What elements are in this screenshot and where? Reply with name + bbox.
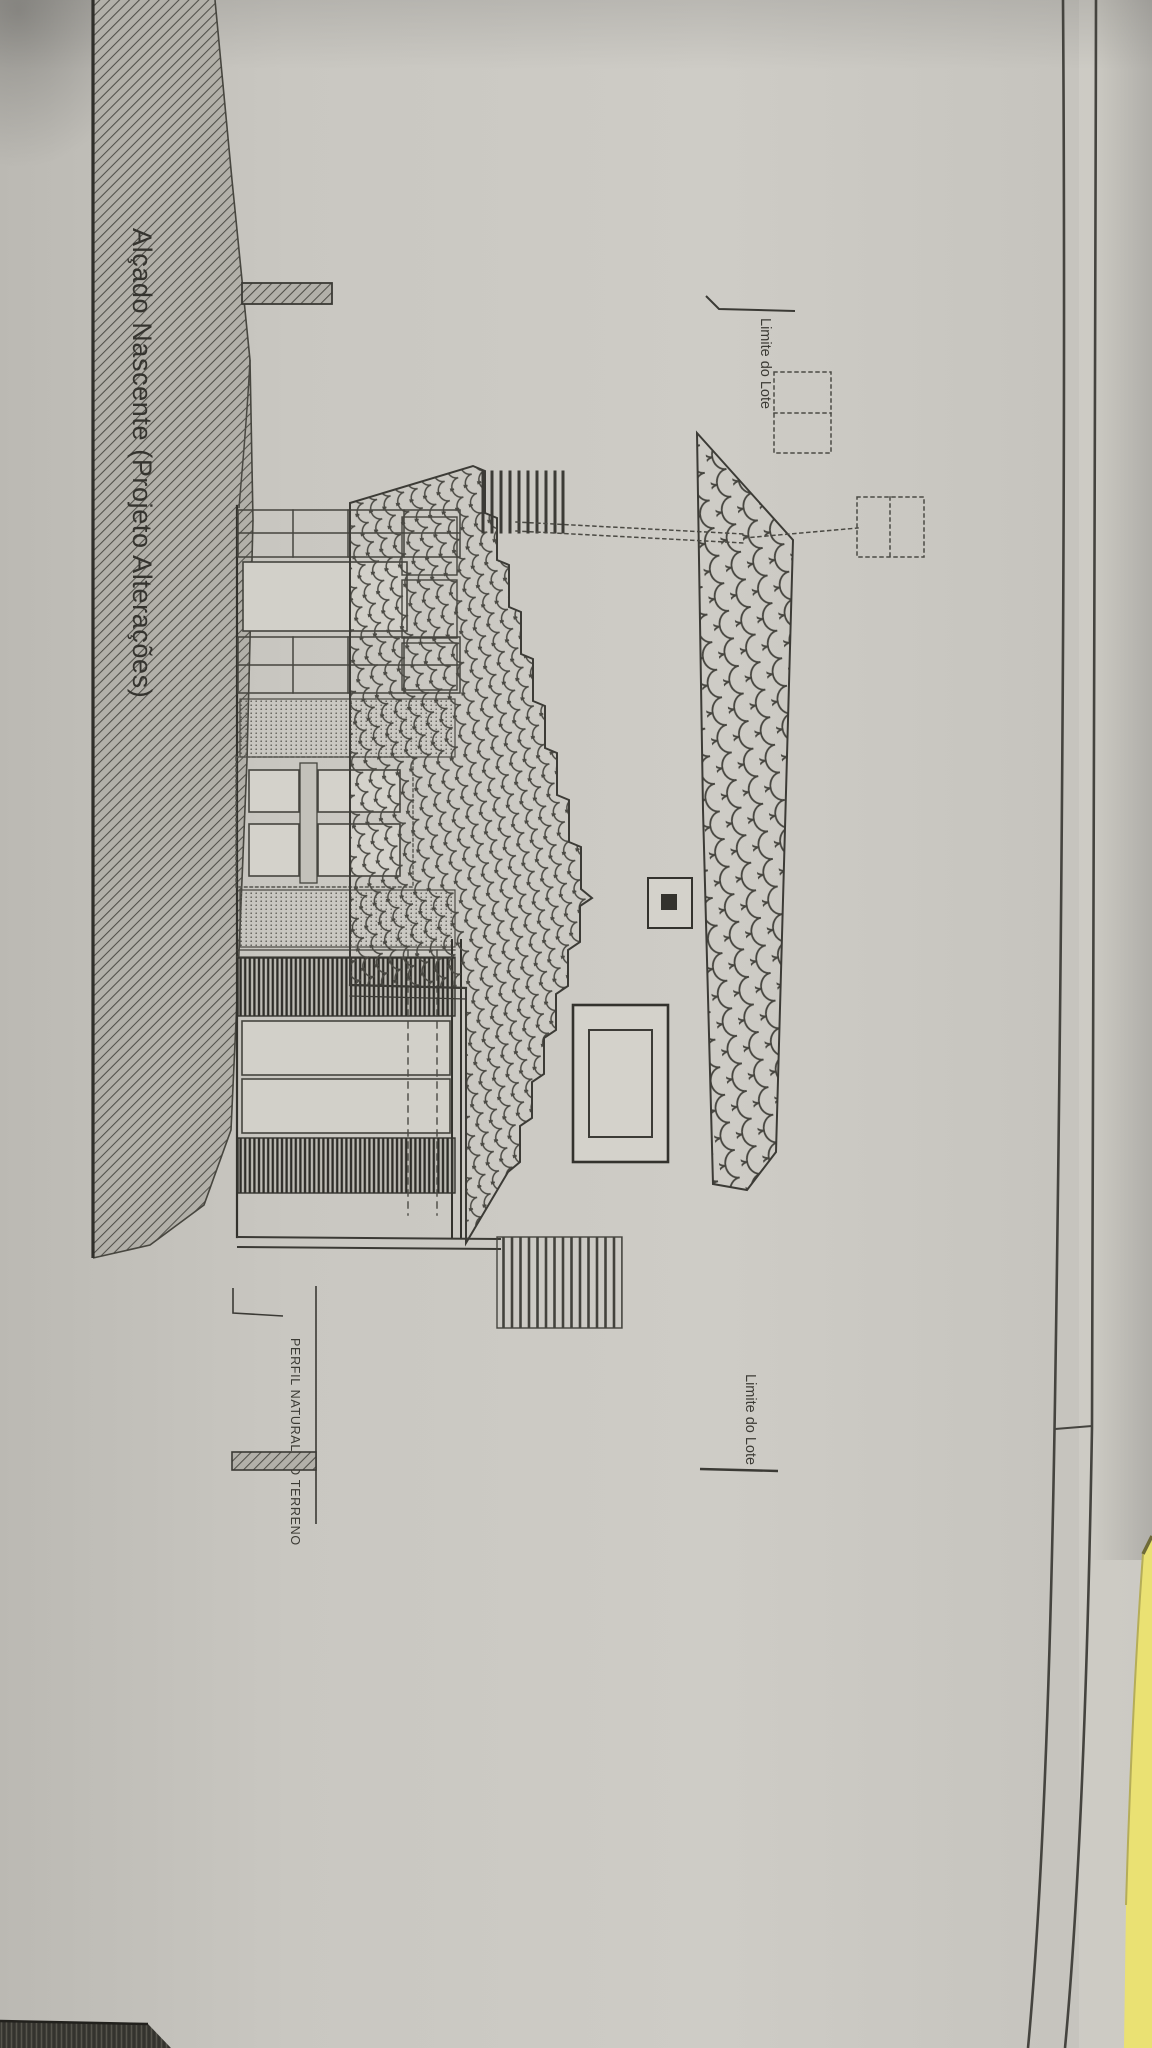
lot-boundary-label-top: Limite do Lote xyxy=(757,318,773,409)
drawing-title: Alçado Nascente (Projeto Alterações) xyxy=(127,228,157,698)
roof-strip-far-slope xyxy=(697,433,793,1190)
boundary-wall-section-right xyxy=(232,1452,316,1470)
boundary-wall-section-left xyxy=(242,283,332,304)
lot-boundary-label-bottom: Limite do Lote xyxy=(742,1374,758,1465)
roof-vent xyxy=(648,878,692,928)
shutter-opening-1 xyxy=(242,1021,450,1075)
balustrade xyxy=(497,1237,622,1328)
terrain-hatch-band xyxy=(93,0,253,1258)
table-edge-strip xyxy=(0,2021,171,2048)
terrain-profile-label: PERFIL NATURAL DO TERRENO xyxy=(288,1338,302,1546)
window-mullion xyxy=(300,763,317,883)
shutter-panels xyxy=(238,958,455,1193)
photo-of-architectural-drawing: Alçado Nascente (Projeto Alterações) Lim… xyxy=(0,0,1152,2048)
elevation-drawing: Alçado Nascente (Projeto Alterações) Lim… xyxy=(0,0,1152,2048)
skylight xyxy=(573,1005,668,1162)
right-edge-shadow xyxy=(1090,0,1152,1560)
shutter-opening-2 xyxy=(242,1079,450,1133)
